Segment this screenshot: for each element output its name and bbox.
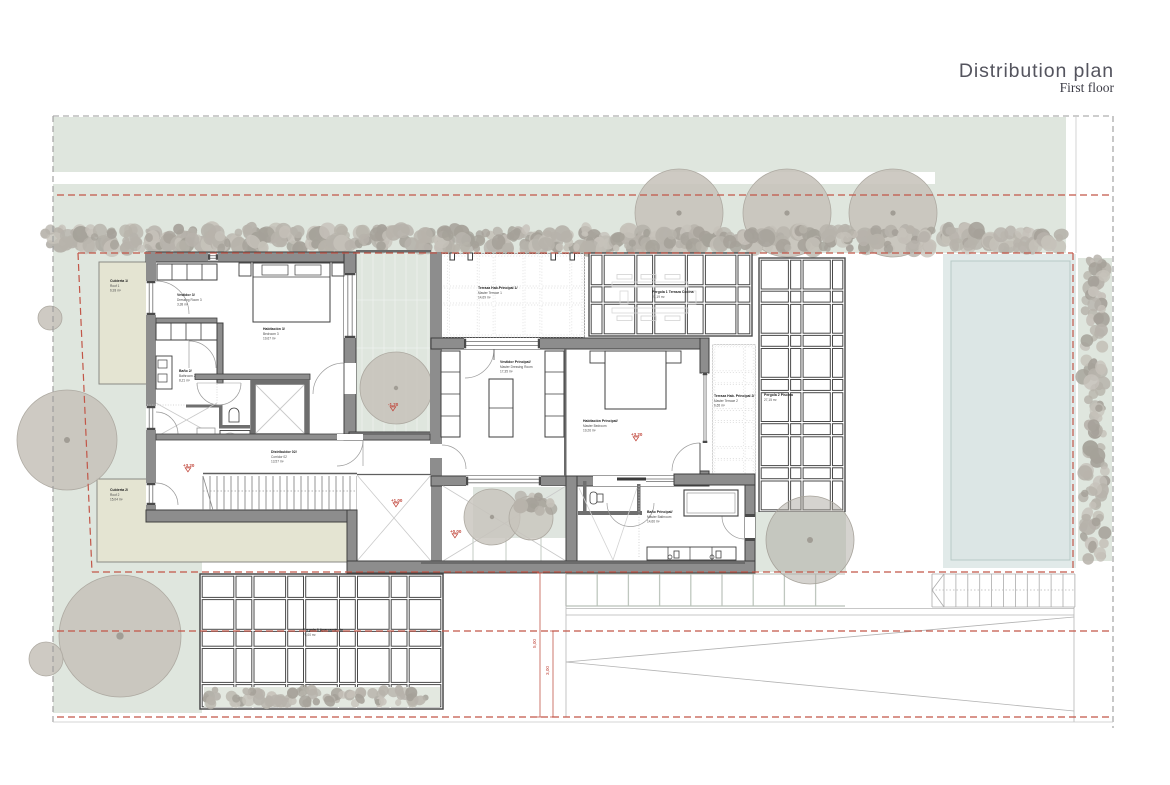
- svg-text:Master Bedroom: Master Bedroom: [583, 424, 607, 428]
- svg-text:Roof 1: Roof 1: [110, 284, 120, 288]
- svg-text:+3,20: +3,20: [183, 463, 195, 468]
- svg-text:3,38 m²: 3,38 m²: [177, 302, 188, 306]
- svg-text:15,04 m²: 15,04 m²: [110, 497, 123, 501]
- svg-text:Bedroom 3: Bedroom 3: [263, 332, 279, 336]
- svg-text:Distribuidor 02/: Distribuidor 02/: [271, 450, 297, 454]
- svg-text:Cubierta 1/: Cubierta 1/: [110, 279, 128, 283]
- svg-text:Corridor 02: Corridor 02: [271, 455, 287, 459]
- svg-text:Pergola 2 Piscina: Pergola 2 Piscina: [764, 393, 793, 397]
- svg-text:Bathroom 2: Bathroom 2: [179, 374, 196, 378]
- svg-text:Terraza Hab.Principal 1/: Terraza Hab.Principal 1/: [478, 286, 517, 290]
- svg-text:13,57 m²: 13,57 m²: [271, 459, 284, 463]
- svg-text:Baño 2/: Baño 2/: [179, 369, 192, 373]
- svg-text:Habitación Principal/: Habitación Principal/: [583, 419, 618, 423]
- svg-text:17,35 m²: 17,35 m²: [500, 369, 513, 373]
- svg-text:Distribution plan: Distribution plan: [959, 60, 1114, 82]
- svg-text:19,67 m²: 19,67 m²: [263, 336, 276, 340]
- svg-text:Cubierta 2/: Cubierta 2/: [110, 488, 128, 492]
- svg-text:Habitación 3/: Habitación 3/: [263, 327, 285, 331]
- svg-text:Pergola 1 Terraza Cocina: Pergola 1 Terraza Cocina: [652, 290, 694, 294]
- svg-text:Master Dressing Room: Master Dressing Room: [500, 365, 533, 369]
- svg-text:First floor: First floor: [1060, 80, 1115, 95]
- svg-text:21,19 m²: 21,19 m²: [652, 295, 665, 299]
- svg-text:Master Terrace 2: Master Terrace 2: [714, 399, 738, 403]
- svg-text:+1,00: +1,00: [391, 498, 403, 503]
- svg-text:-1,20: -1,20: [388, 402, 399, 407]
- svg-text:6,65 m²: 6,65 m²: [714, 403, 725, 407]
- svg-text:19,26 m²: 19,26 m²: [583, 428, 596, 432]
- svg-text:8,21 m²: 8,21 m²: [179, 378, 190, 382]
- svg-text:Master Bathroom: Master Bathroom: [647, 515, 672, 519]
- svg-text:Master Terrace 1: Master Terrace 1: [478, 291, 502, 295]
- svg-text:Vestidor 3/: Vestidor 3/: [177, 293, 195, 297]
- svg-text:+0,00: +0,00: [450, 529, 462, 534]
- svg-text:Vestidor Principal/: Vestidor Principal/: [500, 360, 531, 364]
- svg-text:Dressing Room 3: Dressing Room 3: [177, 298, 202, 302]
- svg-text:14,66 m²: 14,66 m²: [647, 519, 660, 523]
- svg-text:3,00: 3,00: [545, 666, 550, 675]
- svg-text:Roof 2: Roof 2: [110, 493, 120, 497]
- svg-text:+3,20: +3,20: [631, 432, 643, 437]
- svg-text:5,00: 5,00: [532, 639, 537, 648]
- svg-text:75,00 m²: 75,00 m²: [303, 633, 316, 637]
- svg-text:Baño Principal/: Baño Principal/: [647, 510, 673, 514]
- svg-text:27,15 m²: 27,15 m²: [764, 398, 777, 402]
- svg-text:Terraza Hab. Principal 2/: Terraza Hab. Principal 2/: [714, 394, 754, 398]
- svg-text:6,93 m²: 6,93 m²: [110, 288, 121, 292]
- svg-text:14,69 m²: 14,69 m²: [478, 295, 491, 299]
